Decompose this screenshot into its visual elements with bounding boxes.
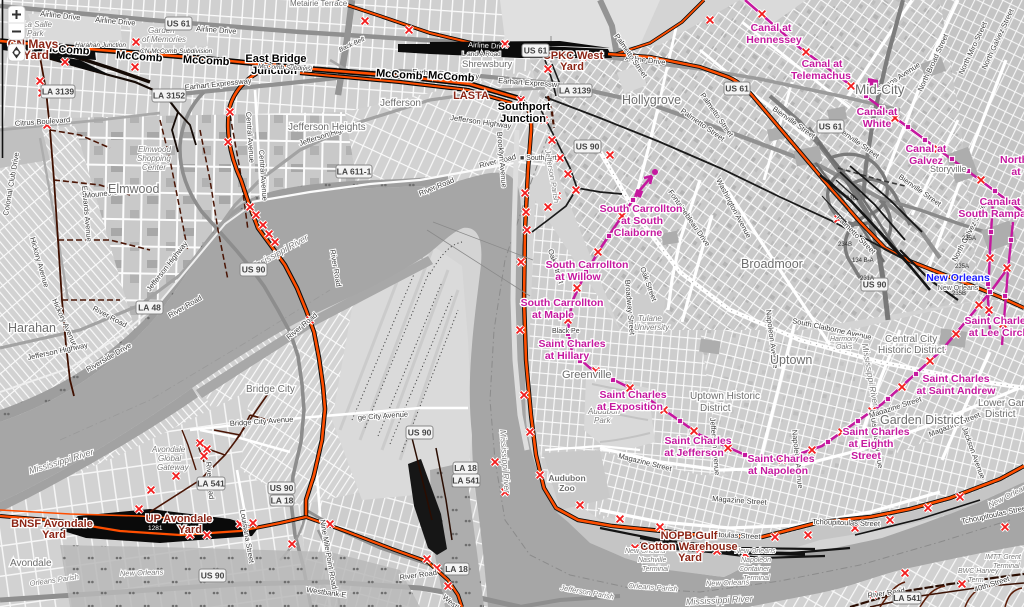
svg-text:Saint Charles: Saint Charles bbox=[538, 338, 605, 350]
svg-text:US 90: US 90 bbox=[242, 265, 266, 275]
svg-text:LA 3139: LA 3139 bbox=[559, 86, 592, 96]
svg-text:LA 611-1: LA 611-1 bbox=[337, 167, 372, 177]
svg-text:LA 48: LA 48 bbox=[138, 303, 161, 313]
svg-text:Southport: Southport bbox=[498, 101, 551, 113]
svg-text:IMTT Grent: IMTT Grent bbox=[985, 554, 1022, 561]
svg-text:Saint Charles: Saint Charles bbox=[842, 426, 909, 438]
svg-text:Elmwood: Elmwood bbox=[108, 182, 159, 196]
svg-text:at Napoleon: at Napoleon bbox=[748, 465, 808, 477]
svg-text:Avondale: Avondale bbox=[10, 558, 52, 569]
svg-text:Mid-City: Mid-City bbox=[855, 82, 905, 97]
svg-text:Jefferson: Jefferson bbox=[380, 98, 421, 109]
svg-text:Terminal: Terminal bbox=[993, 563, 1020, 570]
svg-text:CN McComb Subdivision: CN McComb Subdivision bbox=[140, 48, 213, 55]
svg-text:LASTA: LASTA bbox=[453, 90, 489, 102]
svg-text:Telemachus: Telemachus bbox=[791, 70, 851, 82]
svg-text:Zoo: Zoo bbox=[559, 483, 575, 493]
svg-text:Saint Charles: Saint Charles bbox=[922, 373, 989, 385]
svg-text:Yard: Yard bbox=[23, 48, 49, 62]
svg-text:at Lee Circle: at Lee Circle bbox=[969, 327, 1024, 339]
svg-text:Claiborne: Claiborne bbox=[614, 227, 663, 239]
svg-text:South Carrollton: South Carrollton bbox=[546, 259, 629, 271]
svg-text:Yard: Yard bbox=[42, 529, 66, 541]
svg-text:at Jefferson: at Jefferson bbox=[664, 447, 724, 459]
svg-text:235A: 235A bbox=[955, 264, 969, 270]
svg-text:Saint Charles: Saint Charles bbox=[964, 315, 1024, 327]
svg-text:US 90: US 90 bbox=[201, 571, 225, 581]
svg-text:Junction: Junction bbox=[500, 113, 546, 125]
svg-text:at Saint Andrew: at Saint Andrew bbox=[917, 385, 997, 397]
svg-text:at South: at South bbox=[621, 215, 663, 227]
svg-text:Street: Street bbox=[851, 450, 881, 462]
svg-text:Black Pe: Black Pe bbox=[552, 328, 580, 335]
svg-text:New Orleans: New Orleans bbox=[706, 577, 750, 588]
svg-text:LA 3152: LA 3152 bbox=[153, 91, 186, 101]
svg-text:at Exposition: at Exposition bbox=[597, 401, 663, 413]
svg-text:Canal at: Canal at bbox=[802, 58, 843, 70]
svg-text:Harahan Junction: Harahan Junction bbox=[75, 42, 126, 49]
svg-text:at Maple: at Maple bbox=[532, 309, 574, 321]
svg-text:Avondale: Avondale bbox=[151, 445, 186, 454]
svg-text:at Hillary: at Hillary bbox=[545, 350, 590, 362]
svg-text:Canal at: Canal at bbox=[857, 106, 898, 118]
svg-text:LA 18: LA 18 bbox=[454, 463, 477, 473]
svg-text:White: White bbox=[863, 118, 892, 130]
svg-text:Galvez: Galvez bbox=[909, 155, 943, 167]
svg-text:Terminal: Terminal bbox=[642, 566, 669, 573]
svg-text:US 61: US 61 bbox=[167, 19, 191, 29]
svg-text:Broadmoor: Broadmoor bbox=[741, 257, 803, 271]
svg-text:New Orleans: New Orleans bbox=[926, 272, 990, 284]
svg-text:US 61: US 61 bbox=[524, 46, 548, 56]
svg-text:New Orleans: New Orleans bbox=[735, 548, 776, 555]
svg-text:LA 18: LA 18 bbox=[271, 496, 294, 506]
svg-text:Saint Charles: Saint Charles bbox=[747, 453, 814, 465]
svg-text:District: District bbox=[700, 403, 731, 414]
svg-text:Shopping: Shopping bbox=[137, 154, 171, 163]
svg-text:1281: 1281 bbox=[148, 525, 163, 532]
svg-text:Yard: Yard bbox=[560, 61, 584, 73]
svg-text:Saint Charles: Saint Charles bbox=[599, 389, 666, 401]
svg-text:South Carrollton: South Carrollton bbox=[600, 203, 683, 215]
svg-text:LA 541: LA 541 bbox=[452, 476, 480, 486]
svg-text:South Rampart: South Rampart bbox=[958, 208, 1024, 220]
svg-text:Central City: Central City bbox=[885, 334, 937, 345]
svg-text:234B: 234B bbox=[838, 242, 852, 248]
svg-text:Nashville: Nashville bbox=[638, 557, 667, 564]
svg-text:Canal at: Canal at bbox=[906, 143, 947, 155]
svg-text:University: University bbox=[634, 323, 670, 332]
svg-text:235A: 235A bbox=[962, 236, 976, 242]
svg-text:Historic District: Historic District bbox=[878, 345, 945, 356]
svg-text:Center: Center bbox=[142, 163, 166, 172]
svg-text:New Orleans: New Orleans bbox=[120, 567, 164, 578]
svg-text:at: at bbox=[1011, 166, 1021, 178]
svg-text:Napoleon: Napoleon bbox=[741, 557, 771, 564]
svg-text:Garden District: Garden District bbox=[880, 413, 964, 427]
svg-text:US 61: US 61 bbox=[819, 122, 843, 132]
svg-text:US 61: US 61 bbox=[725, 84, 749, 94]
svg-text:US 90: US 90 bbox=[408, 428, 432, 438]
svg-text:Gateway: Gateway bbox=[157, 463, 190, 472]
svg-text:Saint Charles: Saint Charles bbox=[664, 435, 731, 447]
svg-text:Hennessey: Hennessey bbox=[746, 34, 802, 46]
svg-text:South Carrollton: South Carrollton bbox=[521, 297, 604, 309]
svg-text:Audubon: Audubon bbox=[548, 473, 585, 483]
svg-text:Canal at: Canal at bbox=[980, 196, 1021, 208]
svg-text:US 90: US 90 bbox=[576, 142, 600, 152]
svg-text:Uptown: Uptown bbox=[770, 353, 812, 367]
svg-text:231A: 231A bbox=[860, 276, 874, 282]
svg-text:Uptown Historic: Uptown Historic bbox=[690, 391, 760, 402]
svg-text:Greenville: Greenville bbox=[562, 369, 612, 381]
svg-text:Yard: Yard bbox=[678, 552, 702, 564]
svg-text:Hollygrove: Hollygrove bbox=[622, 93, 681, 107]
svg-text:Shrewsbury: Shrewsbury bbox=[462, 59, 512, 70]
svg-text:Harahan: Harahan bbox=[8, 321, 56, 335]
svg-text:LA 541: LA 541 bbox=[893, 593, 921, 603]
svg-text:LA 18: LA 18 bbox=[445, 564, 468, 574]
svg-text:LA 541: LA 541 bbox=[197, 479, 225, 489]
svg-text:La Salle: La Salle bbox=[23, 20, 52, 29]
svg-text:L and A Road: L and A Road bbox=[462, 51, 501, 58]
svg-text:235B: 235B bbox=[952, 291, 966, 297]
svg-text:Global: Global bbox=[158, 454, 181, 463]
svg-text:Harmony: Harmony bbox=[830, 336, 859, 343]
svg-text:Bridge City: Bridge City bbox=[246, 384, 295, 395]
svg-text:North: North bbox=[1000, 154, 1024, 166]
svg-text:Jefferson Heights: Jefferson Heights bbox=[288, 122, 366, 133]
svg-text:LA 3139: LA 3139 bbox=[42, 87, 75, 97]
svg-text:of Memories: of Memories bbox=[142, 35, 186, 44]
svg-text:Yard: Yard bbox=[178, 524, 202, 536]
svg-text:Metairie Terrace: Metairie Terrace bbox=[290, 0, 348, 8]
svg-text:Canal at: Canal at bbox=[751, 22, 792, 34]
svg-text:at Eighth: at Eighth bbox=[849, 438, 894, 450]
svg-text:Park: Park bbox=[594, 416, 611, 425]
svg-text:District: District bbox=[985, 409, 1016, 420]
svg-text:at Willow: at Willow bbox=[555, 271, 601, 283]
svg-text:McComb: McComb bbox=[183, 54, 230, 68]
svg-text:US 90: US 90 bbox=[270, 483, 294, 493]
svg-text:Oaks: Oaks bbox=[836, 344, 853, 351]
svg-text:Lower Garden: Lower Garden bbox=[978, 398, 1024, 409]
svg-text:134 B-A: 134 B-A bbox=[852, 258, 874, 264]
svg-text:Tulane: Tulane bbox=[638, 314, 662, 323]
svg-text:Term: Term bbox=[968, 577, 984, 584]
svg-text:Container: Container bbox=[739, 566, 770, 573]
svg-text:Elmwood: Elmwood bbox=[138, 145, 171, 154]
